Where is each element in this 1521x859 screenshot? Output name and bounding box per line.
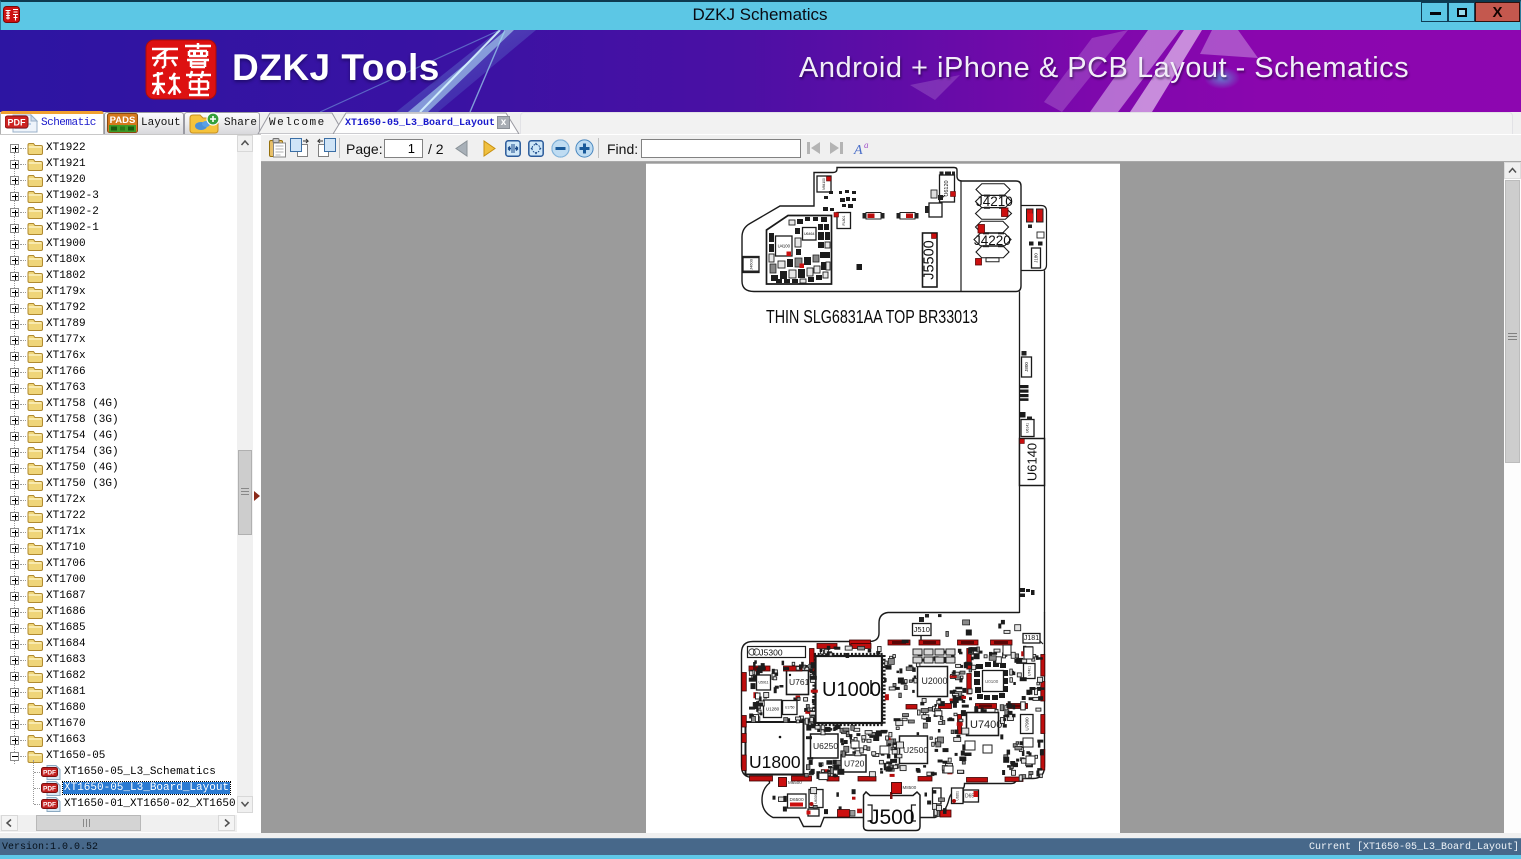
- svg-text:U2000: U2000: [922, 676, 948, 686]
- svg-text:U6141: U6141: [1026, 423, 1030, 433]
- svg-text:U2500: U2500: [903, 745, 928, 755]
- svg-text:U1750: U1750: [785, 706, 795, 710]
- svg-text:U6300: U6300: [814, 793, 818, 804]
- svg-text:D6500: D6500: [790, 797, 804, 803]
- svg-text:FL801: FL801: [842, 215, 846, 225]
- svg-text:U1000: U1000: [822, 679, 881, 701]
- svg-text:J4600: J4600: [749, 258, 754, 270]
- svg-text:U1280: U1280: [766, 706, 780, 711]
- svg-text:U6250: U6250: [813, 741, 838, 751]
- svg-text:THIN SLG6831AA TOP BR33013: THIN SLG6831AA TOP BR33013: [766, 307, 978, 327]
- svg-text:U761: U761: [789, 677, 810, 687]
- svg-text:U6464: U6464: [804, 232, 815, 236]
- svg-text:M84100: M84100: [822, 178, 826, 190]
- svg-text:U6140: U6140: [1025, 443, 1040, 481]
- svg-text:a: a: [864, 140, 869, 150]
- svg-text:U4100: U4100: [778, 244, 791, 249]
- svg-text:U7400: U7400: [970, 719, 1002, 731]
- svg-text:U720: U720: [844, 759, 865, 769]
- svg-text:J4220: J4220: [974, 233, 1011, 248]
- svg-text:J181: J181: [1024, 635, 1039, 642]
- svg-text:PDF: PDF: [8, 118, 27, 128]
- svg-text:A: A: [853, 143, 863, 157]
- svg-text:U0100: U0100: [985, 679, 999, 684]
- svg-text:J510: J510: [914, 625, 930, 634]
- svg-text:U1800: U1800: [749, 752, 801, 772]
- svg-text:D65: D65: [965, 794, 974, 800]
- svg-text:J4210: J4210: [976, 194, 1013, 209]
- svg-text:J5300: J5300: [759, 648, 782, 658]
- svg-text:U6201: U6201: [955, 791, 959, 801]
- svg-text:M8500: M8500: [903, 785, 917, 790]
- svg-text:PDF: PDF: [43, 786, 56, 793]
- svg-text:J180: J180: [1034, 253, 1039, 263]
- svg-text:U6120: U6120: [944, 180, 950, 196]
- svg-text:J5500: J5500: [922, 240, 938, 280]
- svg-text:PDF: PDF: [43, 802, 56, 809]
- svg-text:U7900: U7900: [1024, 717, 1029, 731]
- svg-text:PDF: PDF: [43, 770, 56, 777]
- svg-text:U5911: U5911: [758, 681, 768, 685]
- svg-text:PADS: PADS: [110, 115, 136, 126]
- svg-text:J800: J800: [1024, 362, 1029, 372]
- svg-text:J500: J500: [869, 806, 915, 829]
- svg-text:U7401: U7401: [1027, 666, 1031, 676]
